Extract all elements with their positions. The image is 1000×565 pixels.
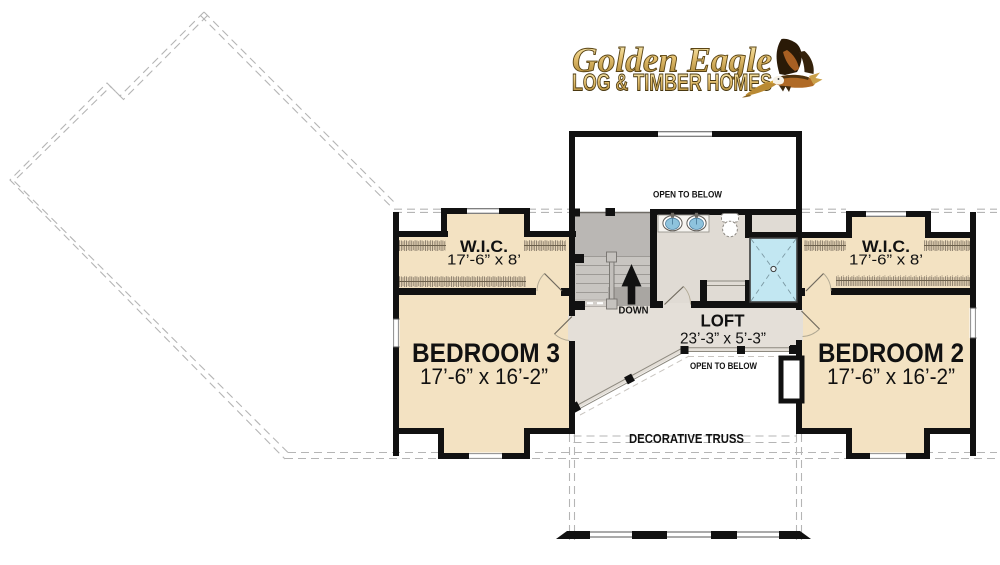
svg-text:DECORATIVE TRUSS: DECORATIVE TRUSS	[629, 432, 744, 446]
svg-text:OPEN TO BELOW: OPEN TO BELOW	[653, 190, 722, 201]
svg-text:17’-6” x 16’-2”: 17’-6” x 16’-2”	[827, 364, 955, 389]
svg-text:23’-3” x 5’-3”: 23’-3” x 5’-3”	[680, 331, 766, 348]
svg-text:LOFT: LOFT	[701, 311, 745, 331]
svg-text:17’-6” x 8’: 17’-6” x 8’	[849, 253, 923, 269]
svg-text:DOWN: DOWN	[619, 305, 649, 317]
svg-text:LOG & TIMBER HOMES: LOG & TIMBER HOMES	[572, 70, 772, 97]
svg-text:17’-6” x 8’: 17’-6” x 8’	[447, 253, 521, 269]
svg-text:OPEN TO BELOW: OPEN TO BELOW	[690, 361, 757, 372]
svg-text:17’-6” x 16’-2”: 17’-6” x 16’-2”	[420, 364, 548, 389]
